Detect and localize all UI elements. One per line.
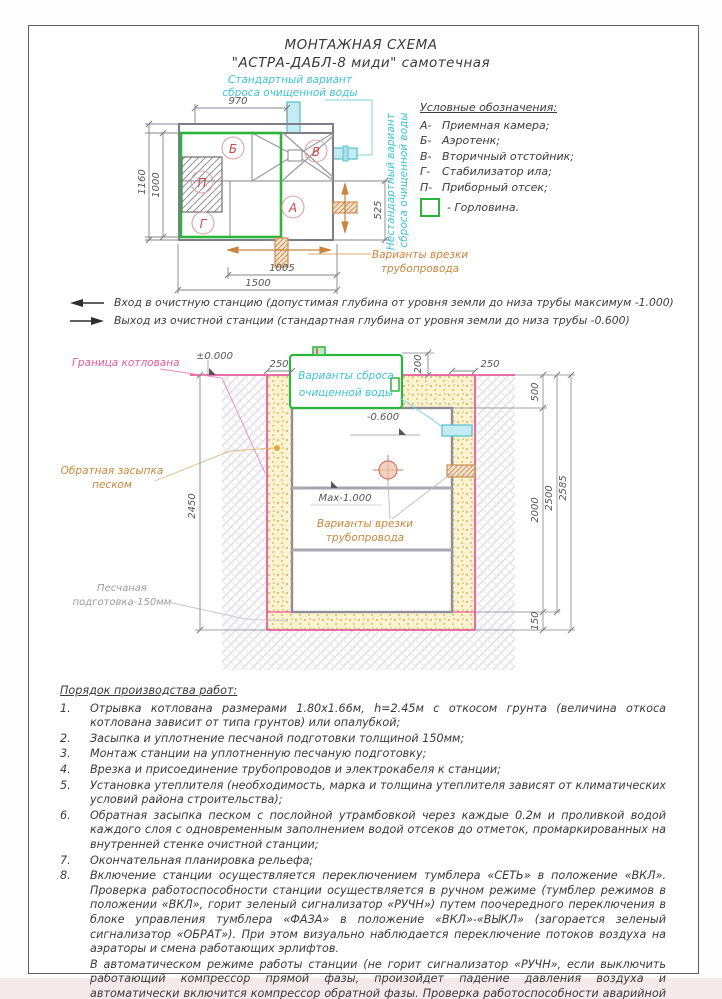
svg-text:250: 250	[269, 359, 288, 370]
chamber-B: Б	[229, 142, 237, 156]
svg-text:2500: 2500	[544, 485, 555, 510]
station-tank	[292, 408, 452, 612]
chamber-V: В	[312, 145, 320, 159]
legend-item-p: Приборный отсек;	[442, 181, 548, 194]
arrow-left-icon	[70, 298, 104, 308]
legend-item-g: Стабилизатор ила;	[442, 165, 552, 178]
chamber-A: А	[288, 201, 297, 215]
dim-1160: 1160	[137, 169, 148, 194]
procedure-item: 7.Окончательная планировка рельефа;	[60, 854, 666, 869]
legend-title: Условные обозначения:	[420, 100, 670, 116]
legend-neck-label: - Горловина.	[447, 200, 519, 216]
svg-text:Варианты сброса: Варианты сброса	[298, 370, 394, 382]
chamber-P: П	[197, 176, 206, 190]
dim-1500: 1500	[245, 278, 270, 289]
pipe-coupling	[343, 146, 348, 161]
procedure-title: Порядок производства работ:	[60, 684, 666, 699]
page-title: МОНТАЖНАЯ СХЕМА "АСТРА-ДАБЛ-8 миди" само…	[0, 36, 722, 72]
svg-text:Обратная засыпка: Обратная засыпка	[61, 465, 164, 477]
procedure-item: 3.Монтаж станции на уплотненную песчаную…	[60, 747, 666, 762]
svg-text:150: 150	[530, 611, 541, 630]
svg-text:Варианты врезки: Варианты врезки	[372, 249, 468, 261]
legend-item-v: Вторичный отстойник;	[442, 150, 574, 163]
legend-item-a: Приемная камера;	[442, 119, 549, 132]
svg-text:2585: 2585	[558, 475, 569, 500]
svg-text:2000: 2000	[530, 497, 541, 522]
legend-item-b: Аэротенк;	[442, 134, 500, 147]
procedure-item: 1.Отрывка котлована размерами 1.80х1.66м…	[60, 702, 666, 731]
backfill-dot	[274, 445, 280, 451]
svg-text:500: 500	[530, 382, 541, 401]
procedure-section: Порядок производства работ: 1.Отрывка ко…	[60, 684, 666, 999]
arrow-right-icon	[70, 316, 104, 326]
nonstandard-discharge-label: Нестандартный вариант сброса очищенной в…	[385, 110, 410, 250]
procedure-item: 2.Засыпка и уплотнение песчаной подготов…	[60, 732, 666, 747]
svg-text:подготовка-150мм: подготовка-150мм	[73, 597, 172, 608]
neck-top-green: Варианты сброса очищенной воды	[290, 347, 402, 408]
svg-text:Граница котлована: Граница котлована	[72, 357, 180, 369]
svg-text:±0.000: ±0.000	[196, 351, 233, 362]
dim-1005: 1005	[269, 263, 294, 274]
section-outlet-pipe	[442, 425, 472, 436]
plan-pipe-insert-label: Варианты врезки трубопровода	[308, 249, 468, 275]
montage-scheme-page: МОНТАЖНАЯ СХЕМА "АСТРА-ДАБЛ-8 миди" само…	[0, 0, 722, 999]
inlet-note: Вход в очистную станцию (допустимая глуб…	[70, 296, 670, 309]
title-line1: МОНТАЖНАЯ СХЕМА	[0, 36, 722, 54]
procedure-item8-continuation: В автоматическом режиме работы станции (…	[90, 958, 666, 999]
procedure-item: 5.Установка утеплителя (необходимость, м…	[60, 779, 666, 808]
svg-text:2450: 2450	[187, 493, 198, 518]
procedure-item: 6.Обратная засыпка песком с послойной ут…	[60, 809, 666, 853]
legend: Условные обозначения: А-Приемная камера;…	[420, 100, 670, 217]
cross-section-drawing: Варианты сброса очищенной воды -0.600 Ma…	[60, 338, 620, 683]
procedure-item: 4.Врезка и присоединение трубопроводов и…	[60, 763, 666, 778]
dim-970: 970	[228, 96, 247, 107]
max-1000-label: Max-1.000	[310, 493, 382, 505]
svg-text:Max-1.000: Max-1.000	[319, 493, 372, 504]
neck-square-icon	[420, 198, 440, 217]
svg-text:Варианты врезки: Варианты врезки	[317, 518, 413, 530]
svg-text:250: 250	[480, 359, 499, 370]
outlet-note: Выход из очистной станции (стандартная г…	[70, 314, 670, 327]
svg-text:песком: песком	[92, 479, 132, 491]
svg-text:трубопровода: трубопровода	[381, 263, 459, 275]
procedure-item: 8.Включение станции осуществляется перек…	[60, 869, 666, 957]
title-line2: "АСТРА-ДАБЛ-8 миди" самотечная	[0, 54, 722, 72]
dim-1000: 1000	[151, 172, 162, 197]
svg-text:200: 200	[413, 354, 424, 373]
svg-text:очищенной воды: очищенной воды	[299, 387, 393, 399]
vent-cap	[313, 347, 325, 355]
svg-text:Нестандартный вариант: Нестандартный вариант сброса очищенной в…	[385, 110, 410, 250]
chamber-G: Г	[200, 217, 208, 231]
zero-level: ±0.000	[196, 351, 233, 375]
svg-text:-0.600: -0.600	[367, 412, 399, 423]
svg-text:Стандартный вариант: Стандартный вариант	[228, 74, 353, 86]
svg-text:трубопровода: трубопровода	[326, 532, 404, 544]
dim-525: 525	[373, 200, 384, 219]
svg-text:Песчаная: Песчаная	[97, 583, 147, 594]
